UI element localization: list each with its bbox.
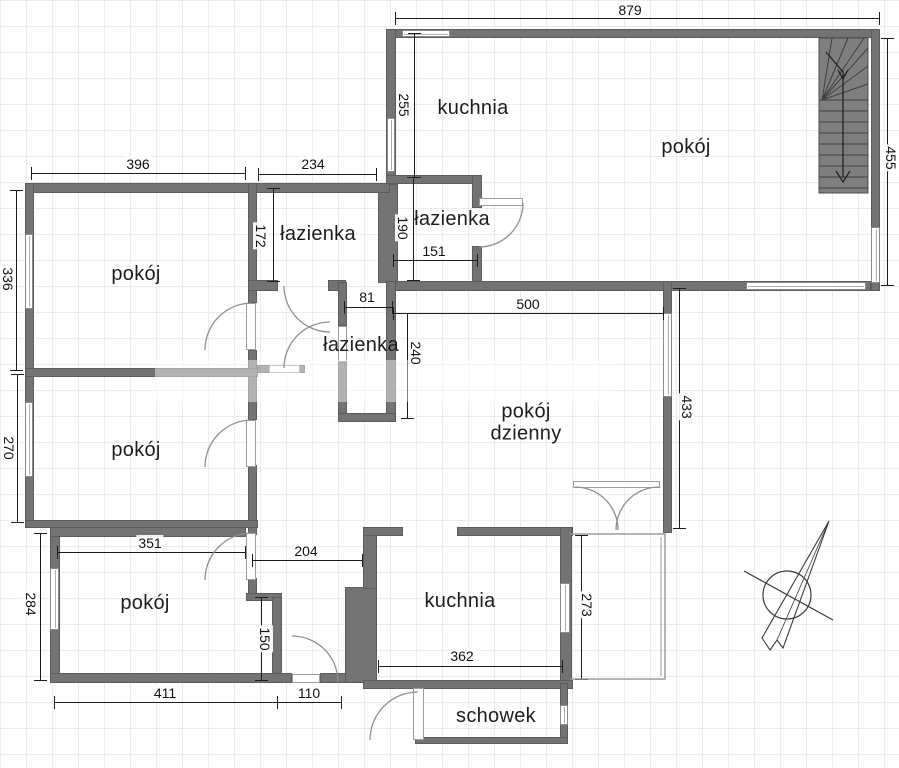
dimension-pokoj-dzienny-height-tick [673, 288, 686, 289]
wall [50, 673, 292, 683]
dimension-lazienka-left-height-tick [267, 281, 280, 282]
dimension-pokoj1-height-tick [10, 190, 23, 191]
dimension-pokoj1-width-label: 396 [124, 156, 151, 172]
window-pane-line [748, 286, 864, 287]
dimension-top-total-width-tick [395, 12, 396, 25]
dimension-hall-depth-tick [401, 418, 414, 419]
wall [390, 29, 880, 38]
window [871, 227, 880, 283]
dimension-balcony-height-label: 273 [579, 591, 595, 618]
dimension-pokoj-dzienny-width-tick [663, 307, 664, 320]
dimension-pokoj1-width-tick [245, 167, 246, 180]
dimension-pokoj3-width-bottom-tick [54, 696, 55, 709]
dimension-pokoj-dzienny-width-tick [393, 307, 394, 320]
dimension-lazienka-left-width-line [258, 174, 376, 175]
wall [386, 175, 482, 184]
dimension-niche-height-tick [255, 597, 268, 598]
room-label-kuchnia-bottom: kuchnia [424, 590, 495, 612]
dimension-pokoj3-height-line [40, 533, 41, 680]
room-label-pokoj-dzienny: pokójdzienny [490, 401, 561, 446]
dimension-pokoj2-height-tick [11, 522, 24, 523]
dimension-hall-depth-label: 240 [408, 339, 424, 366]
dimension-lazienka-left-height-tick [267, 188, 280, 189]
dimension-top-total-width-line [395, 18, 879, 19]
dimension-lazienka-middle-width-tick [344, 301, 345, 314]
room-label-pokoj-2: pokój [111, 439, 160, 461]
dimension-balcony-height-tick [575, 535, 588, 536]
door-leaf [246, 303, 256, 350]
window [560, 705, 568, 725]
dimension-corridor-width-line [277, 702, 341, 703]
dimension-corridor-width-label: 110 [296, 685, 322, 701]
stairs-block [819, 38, 868, 193]
wall [345, 587, 377, 683]
compass-needle-inner-line [777, 521, 829, 640]
dimension-lazienka-middle-width-label: 81 [357, 289, 377, 305]
dimension-pokoj1-height-line [16, 190, 17, 370]
dimension-pokoj3-height-tick [34, 680, 47, 681]
room-label-pokoj-top-right: pokój [661, 136, 710, 158]
stairs-arrowhead-bottom [836, 171, 850, 182]
dimension-top-total-width-label: 879 [616, 2, 643, 18]
dimension-pokoj-dzienny-width-line [393, 313, 663, 314]
room-label-kuchnia-top: kuchnia [437, 97, 508, 119]
dimension-pokoj1-width-line [31, 173, 245, 174]
compass-cross-line [744, 571, 833, 620]
window-pane-line [391, 120, 392, 170]
dimension-pokoj3-width-bottom-label: 411 [152, 685, 178, 701]
dimension-pokoj3-width-top-tick [57, 546, 58, 559]
wall [363, 680, 573, 689]
door-swing-arc [205, 303, 252, 350]
room-label-pokoj-3: pokój [120, 592, 169, 614]
wall [320, 673, 347, 683]
dimension-lazienka-left-width-tick [258, 168, 259, 181]
window-pane-line [55, 570, 56, 628]
dimension-kuchnia-top-depth-tick [408, 33, 421, 34]
dimension-hall-width-label: 204 [292, 543, 319, 559]
compass-circle [763, 571, 811, 619]
dimension-right-section-height-tick [881, 285, 894, 286]
dimension-right-section-height-label: 455 [883, 144, 899, 171]
stairs-direction-arrow [826, 52, 843, 178]
dimension-pokoj2-height-line [17, 374, 18, 522]
window [746, 282, 866, 290]
room-label-lazienka-top-right: łazienka [414, 208, 490, 230]
dimension-right-section-height-tick [881, 38, 894, 39]
dimension-lazienka-right-height-label: 190 [395, 214, 411, 241]
dimension-lazienka-middle-width-line [344, 307, 392, 308]
wall [363, 527, 403, 536]
wall [415, 737, 568, 744]
door-leaf [246, 533, 256, 580]
dimension-lazienka-right-height-tick [407, 177, 420, 178]
dimension-hall-width-tick [252, 554, 253, 567]
dimension-lazienka-left-height-line [273, 188, 274, 281]
dimension-pokoj1-height-tick [10, 370, 23, 371]
room-label-line1: pokój [490, 401, 561, 423]
door-leaf [413, 688, 424, 740]
dimension-kuchnia-bottom-width-tick [378, 660, 379, 673]
stairs-treads [819, 100, 868, 188]
dimension-pokoj3-height-tick [34, 533, 47, 534]
dimension-lazienka-left-width-tick [376, 168, 377, 181]
watermark-band [155, 360, 615, 402]
dimension-pokoj3-height-label: 284 [23, 590, 39, 617]
dimension-pokoj-dzienny-width-label: 500 [514, 296, 541, 312]
dimension-hall-width-tick [362, 554, 363, 567]
room-label-lazienka-middle: łazienka [323, 334, 399, 356]
dimension-balcony-height-tick [575, 679, 588, 680]
dimension-pokoj-dzienny-height-label: 433 [679, 393, 695, 420]
dimension-lazienka-left-width-label: 234 [299, 156, 326, 172]
dimension-lazienka-right-width-tick [477, 254, 478, 267]
wall [338, 413, 396, 422]
room-label-line2: dzienny [490, 423, 561, 445]
dimension-pokoj-dzienny-height-tick [673, 528, 686, 529]
dimension-pokoj3-width-top-label: 351 [136, 535, 163, 551]
window-pane-line [564, 707, 565, 723]
window-pane-line [29, 404, 30, 475]
dimension-top-total-width-tick [879, 12, 880, 25]
window [387, 118, 395, 172]
door-swing-arc [575, 487, 618, 530]
window [663, 313, 672, 397]
floorplan-canvas: 8793962342551721901518150045533627024043… [0, 0, 899, 768]
wall [338, 282, 347, 326]
stairs-winders [822, 38, 868, 100]
dimension-hall-depth-tick [401, 313, 414, 314]
door-swing-arc [205, 420, 252, 467]
door-leaf [573, 481, 660, 488]
dimension-pokoj1-height-label: 336 [0, 265, 16, 292]
dimension-lazienka-right-width-label: 151 [420, 243, 447, 259]
room-label-pokoj-1: pokój [111, 263, 160, 285]
dimension-hall-width-line [252, 560, 362, 561]
door-swing-arc [284, 286, 330, 332]
door-leaf [246, 420, 256, 467]
dimension-pokoj3-width-top-line [57, 552, 245, 553]
window-pane-line [29, 236, 30, 307]
dimension-lazienka-right-width-tick [393, 254, 394, 267]
dimension-corridor-width-tick [341, 696, 342, 709]
window [25, 402, 33, 477]
window-pane-line [668, 315, 669, 395]
window [25, 234, 33, 309]
dimension-kuchnia-bottom-width-label: 362 [448, 648, 475, 664]
door-swing-arc [616, 487, 659, 530]
dimension-pokoj2-height-label: 270 [1, 434, 17, 461]
dimension-niche-height-tick [255, 680, 268, 681]
wall [457, 527, 573, 536]
stairs-arrowhead-top [838, 70, 848, 79]
dimension-lazienka-left-height-label: 172 [253, 222, 269, 249]
door-leaf [479, 198, 523, 206]
dimension-pokoj1-width-tick [31, 167, 32, 180]
dimension-pokoj2-height-tick [11, 374, 24, 375]
window [560, 583, 570, 633]
dimension-pokoj3-width-top-tick [245, 546, 246, 559]
wall [272, 597, 282, 680]
room-label-schowek: schowek [456, 705, 536, 727]
dimension-kuchnia-bottom-width-line [378, 666, 562, 667]
window [50, 568, 59, 630]
dimension-corridor-width-tick [277, 696, 278, 709]
door-leaf [292, 674, 320, 683]
window-pane-line [876, 229, 877, 281]
compass-needle [762, 521, 829, 650]
dimension-kuchnia-top-depth-label: 255 [396, 91, 412, 118]
window-pane-line [565, 585, 566, 631]
wall [363, 527, 377, 589]
wall [25, 183, 390, 193]
dimension-lazienka-right-height-tick [407, 280, 420, 281]
dimension-lazienka-right-width-line [393, 260, 477, 261]
room-label-lazienka-top-left: łazienka [280, 223, 356, 245]
dimension-pokoj3-width-bottom-line [54, 702, 277, 703]
dimension-kuchnia-bottom-width-tick [562, 660, 563, 673]
dimension-niche-height-label: 150 [257, 625, 273, 652]
dimension-kuchnia-top-depth-line [414, 33, 415, 177]
door-swing-arc [370, 692, 418, 740]
